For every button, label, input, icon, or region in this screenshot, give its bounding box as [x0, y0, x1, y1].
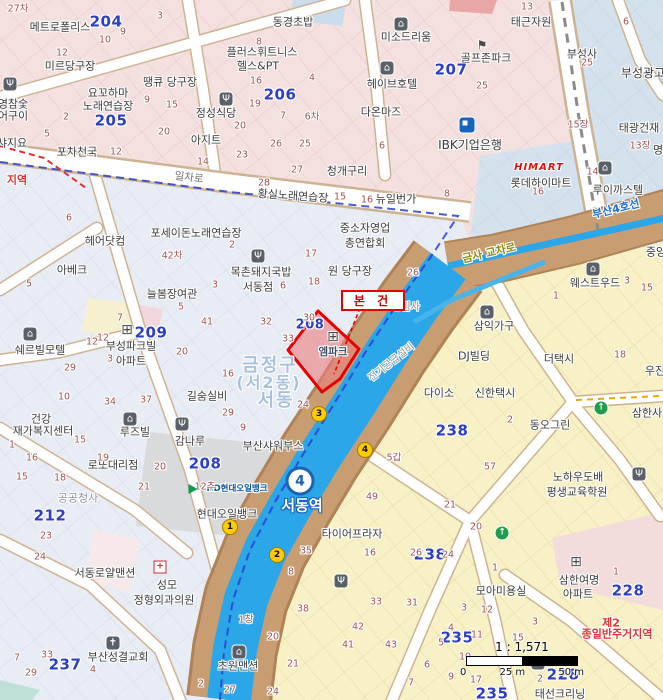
scale-tick-25: 25 m [500, 667, 526, 678]
subject-callout-label: 본 건 [354, 292, 392, 309]
scale-tick-0: 0 [460, 667, 466, 678]
station-name: 서동역 [281, 499, 322, 514]
metro-line4-station-icon: 4 [286, 467, 315, 496]
map-canvas[interactable]: 메트로폴리스미르당구장땡큐 당구장요꼬하마노래연습장포차천국영참숯어구이샤지요동… [0, 0, 663, 700]
subject-callout: 본 건 [341, 290, 405, 311]
scale-bar-graphic [466, 656, 578, 666]
map-base-layer [0, 0, 663, 700]
scale-bar: 1 : 1,571 0 25 m 50 m [460, 640, 584, 678]
scale-tick-50: 50 m [558, 667, 584, 678]
scale-ratio: 1 : 1,571 [460, 640, 584, 654]
line-number: 4 [295, 473, 305, 489]
